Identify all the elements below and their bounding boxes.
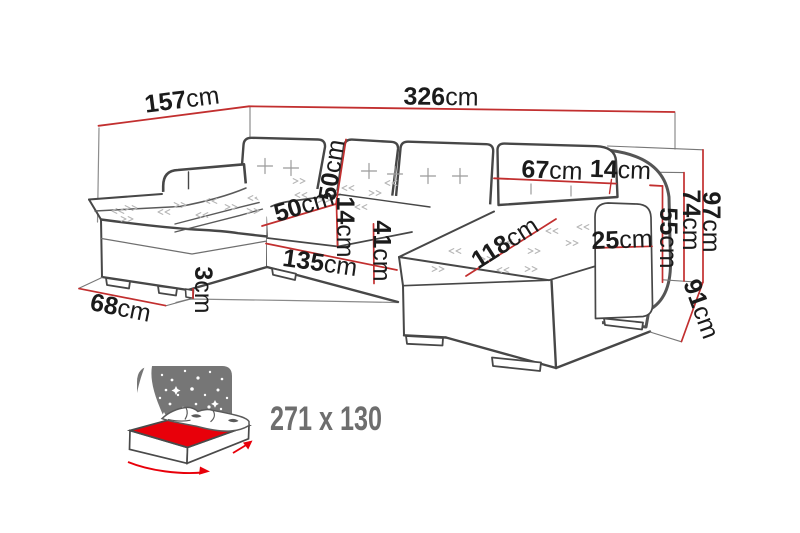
- svg-text:14cm: 14cm: [331, 196, 359, 257]
- svg-text:97cm: 97cm: [697, 191, 725, 252]
- svg-text:271 x 130: 271 x 130: [270, 400, 382, 438]
- svg-text:14cm: 14cm: [589, 155, 651, 186]
- svg-text:25cm: 25cm: [591, 225, 653, 255]
- svg-text:41cm: 41cm: [368, 220, 396, 281]
- svg-text:67cm: 67cm: [521, 155, 583, 186]
- svg-text:3cm: 3cm: [189, 266, 217, 313]
- svg-text:326cm: 326cm: [403, 82, 478, 111]
